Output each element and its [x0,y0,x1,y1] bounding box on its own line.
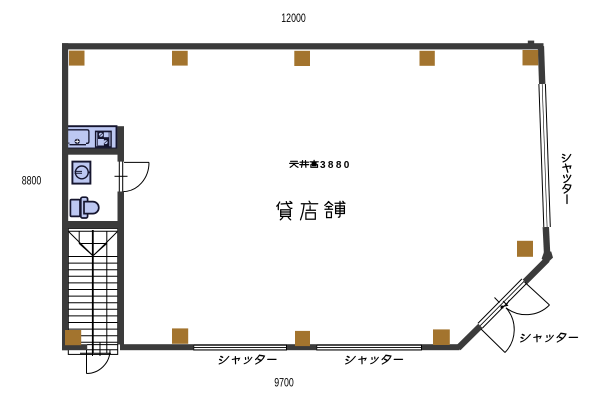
svg-text:8800: 8800 [22,174,42,188]
svg-text:9700: 9700 [274,376,294,390]
svg-text:3880: 3880 [320,160,352,171]
svg-text:12000: 12000 [281,12,305,26]
